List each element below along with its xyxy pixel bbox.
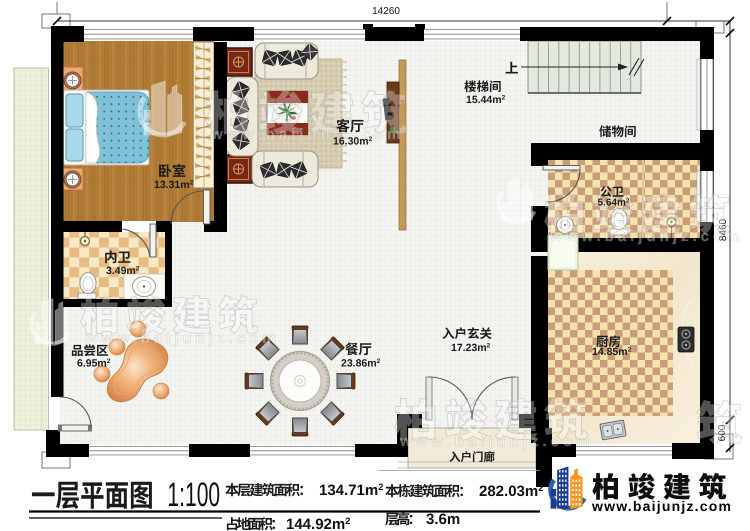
svg-text:14.85m2: 14.85m2 bbox=[592, 346, 632, 358]
svg-text:www.baijunjz.com: www.baijunjz.com bbox=[85, 330, 279, 347]
svg-text:www.baijunjz.com: www.baijunjz.com bbox=[399, 433, 593, 450]
svg-text:www.baijunjz.com: www.baijunjz.com bbox=[549, 228, 743, 245]
svg-text:3.49m2: 3.49m2 bbox=[106, 265, 140, 277]
svg-text:16.30m2: 16.30m2 bbox=[333, 136, 373, 148]
svg-text:3.6m: 3.6m bbox=[426, 511, 460, 528]
svg-text:14260: 14260 bbox=[372, 6, 400, 17]
svg-text:13.31m2: 13.31m2 bbox=[154, 179, 194, 191]
svg-text:1:100: 1:100 bbox=[167, 476, 220, 514]
svg-text:6.95m2: 6.95m2 bbox=[77, 358, 111, 370]
svg-text:www.baijunjz.com: www.baijunjz.com bbox=[591, 498, 731, 514]
svg-text:5.64m2: 5.64m2 bbox=[598, 197, 630, 208]
svg-text:www.baijunjz.com: www.baijunjz.com bbox=[210, 126, 404, 143]
svg-text:15.44m2: 15.44m2 bbox=[466, 94, 506, 106]
svg-text:23.86m2: 23.86m2 bbox=[341, 358, 381, 370]
svg-text:134.71m2: 134.71m2 bbox=[319, 482, 383, 499]
svg-text:144.92m2: 144.92m2 bbox=[286, 516, 350, 531]
svg-text:17.23m2: 17.23m2 bbox=[451, 342, 491, 354]
svg-text:282.03m2: 282.03m2 bbox=[479, 483, 543, 500]
